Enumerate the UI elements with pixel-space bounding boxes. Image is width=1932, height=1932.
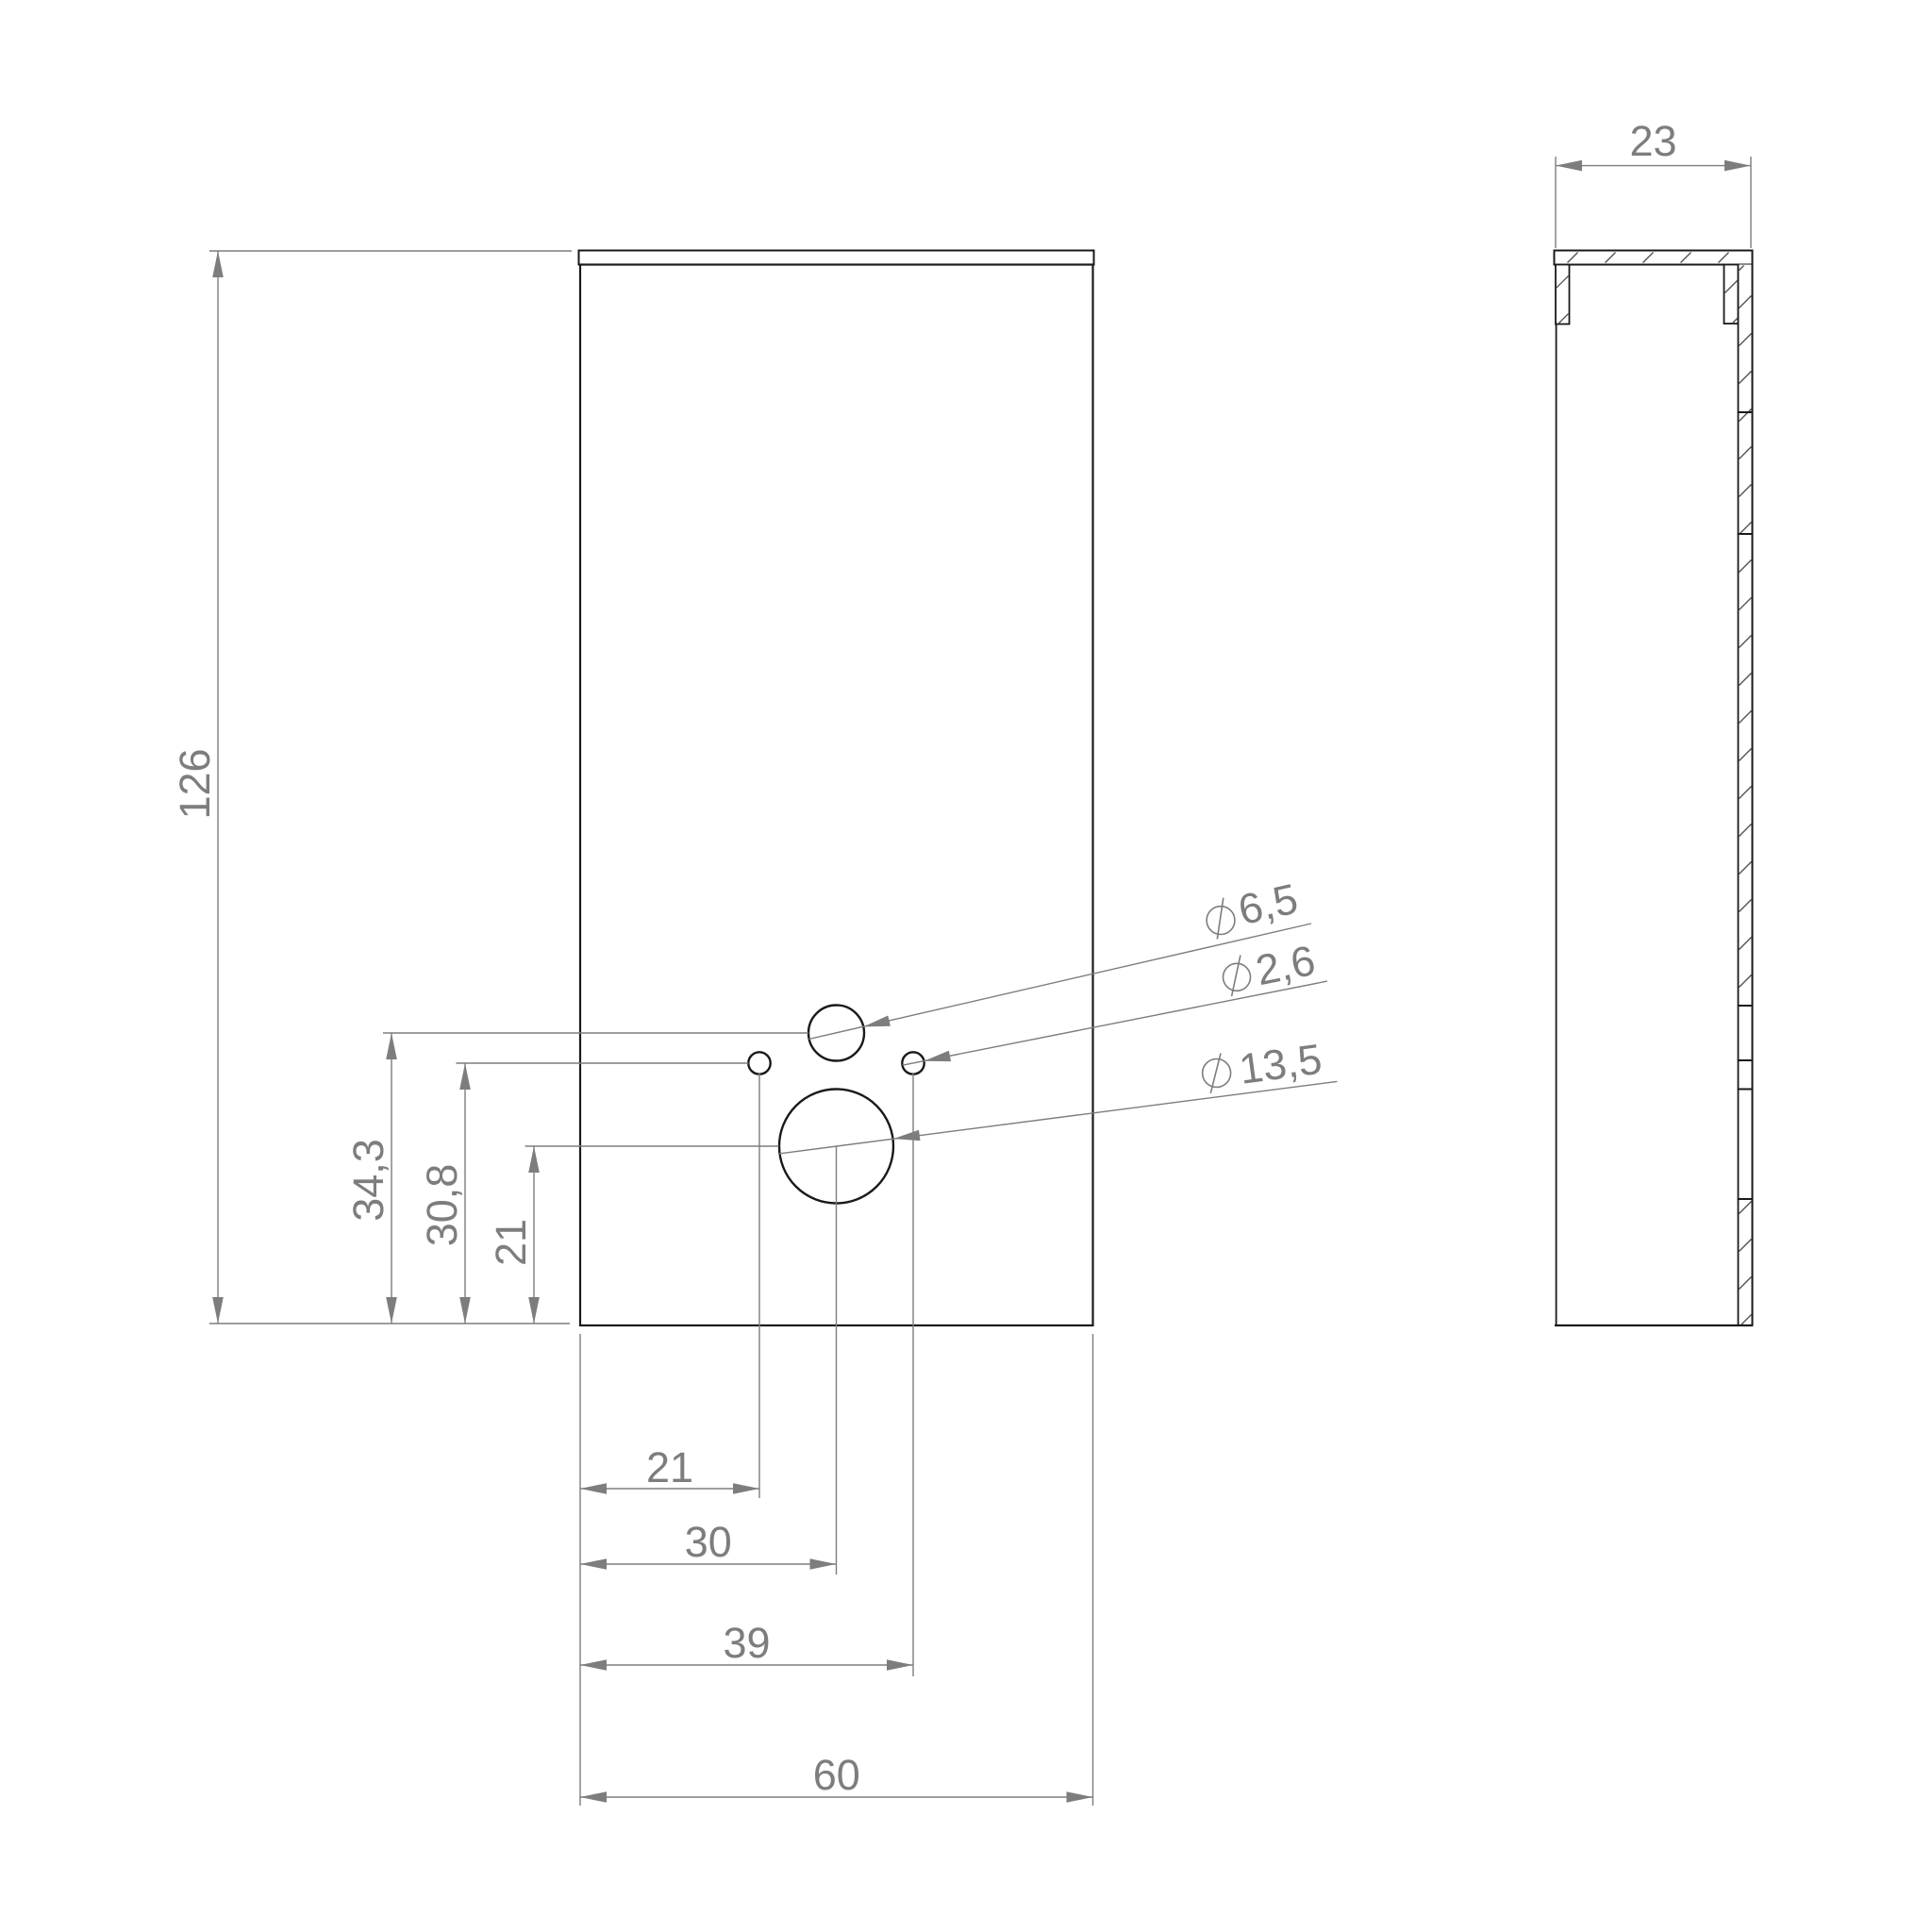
svg-text:21: 21 [646, 1443, 693, 1491]
svg-text:30: 30 [685, 1518, 732, 1566]
svg-text:60: 60 [813, 1751, 860, 1799]
svg-text:34,3: 34,3 [344, 1139, 392, 1222]
svg-text:39: 39 [723, 1619, 770, 1667]
svg-text:30,8: 30,8 [418, 1164, 466, 1247]
svg-text:126: 126 [171, 748, 219, 819]
svg-text:23: 23 [1629, 117, 1676, 165]
svg-text:21: 21 [487, 1219, 535, 1266]
